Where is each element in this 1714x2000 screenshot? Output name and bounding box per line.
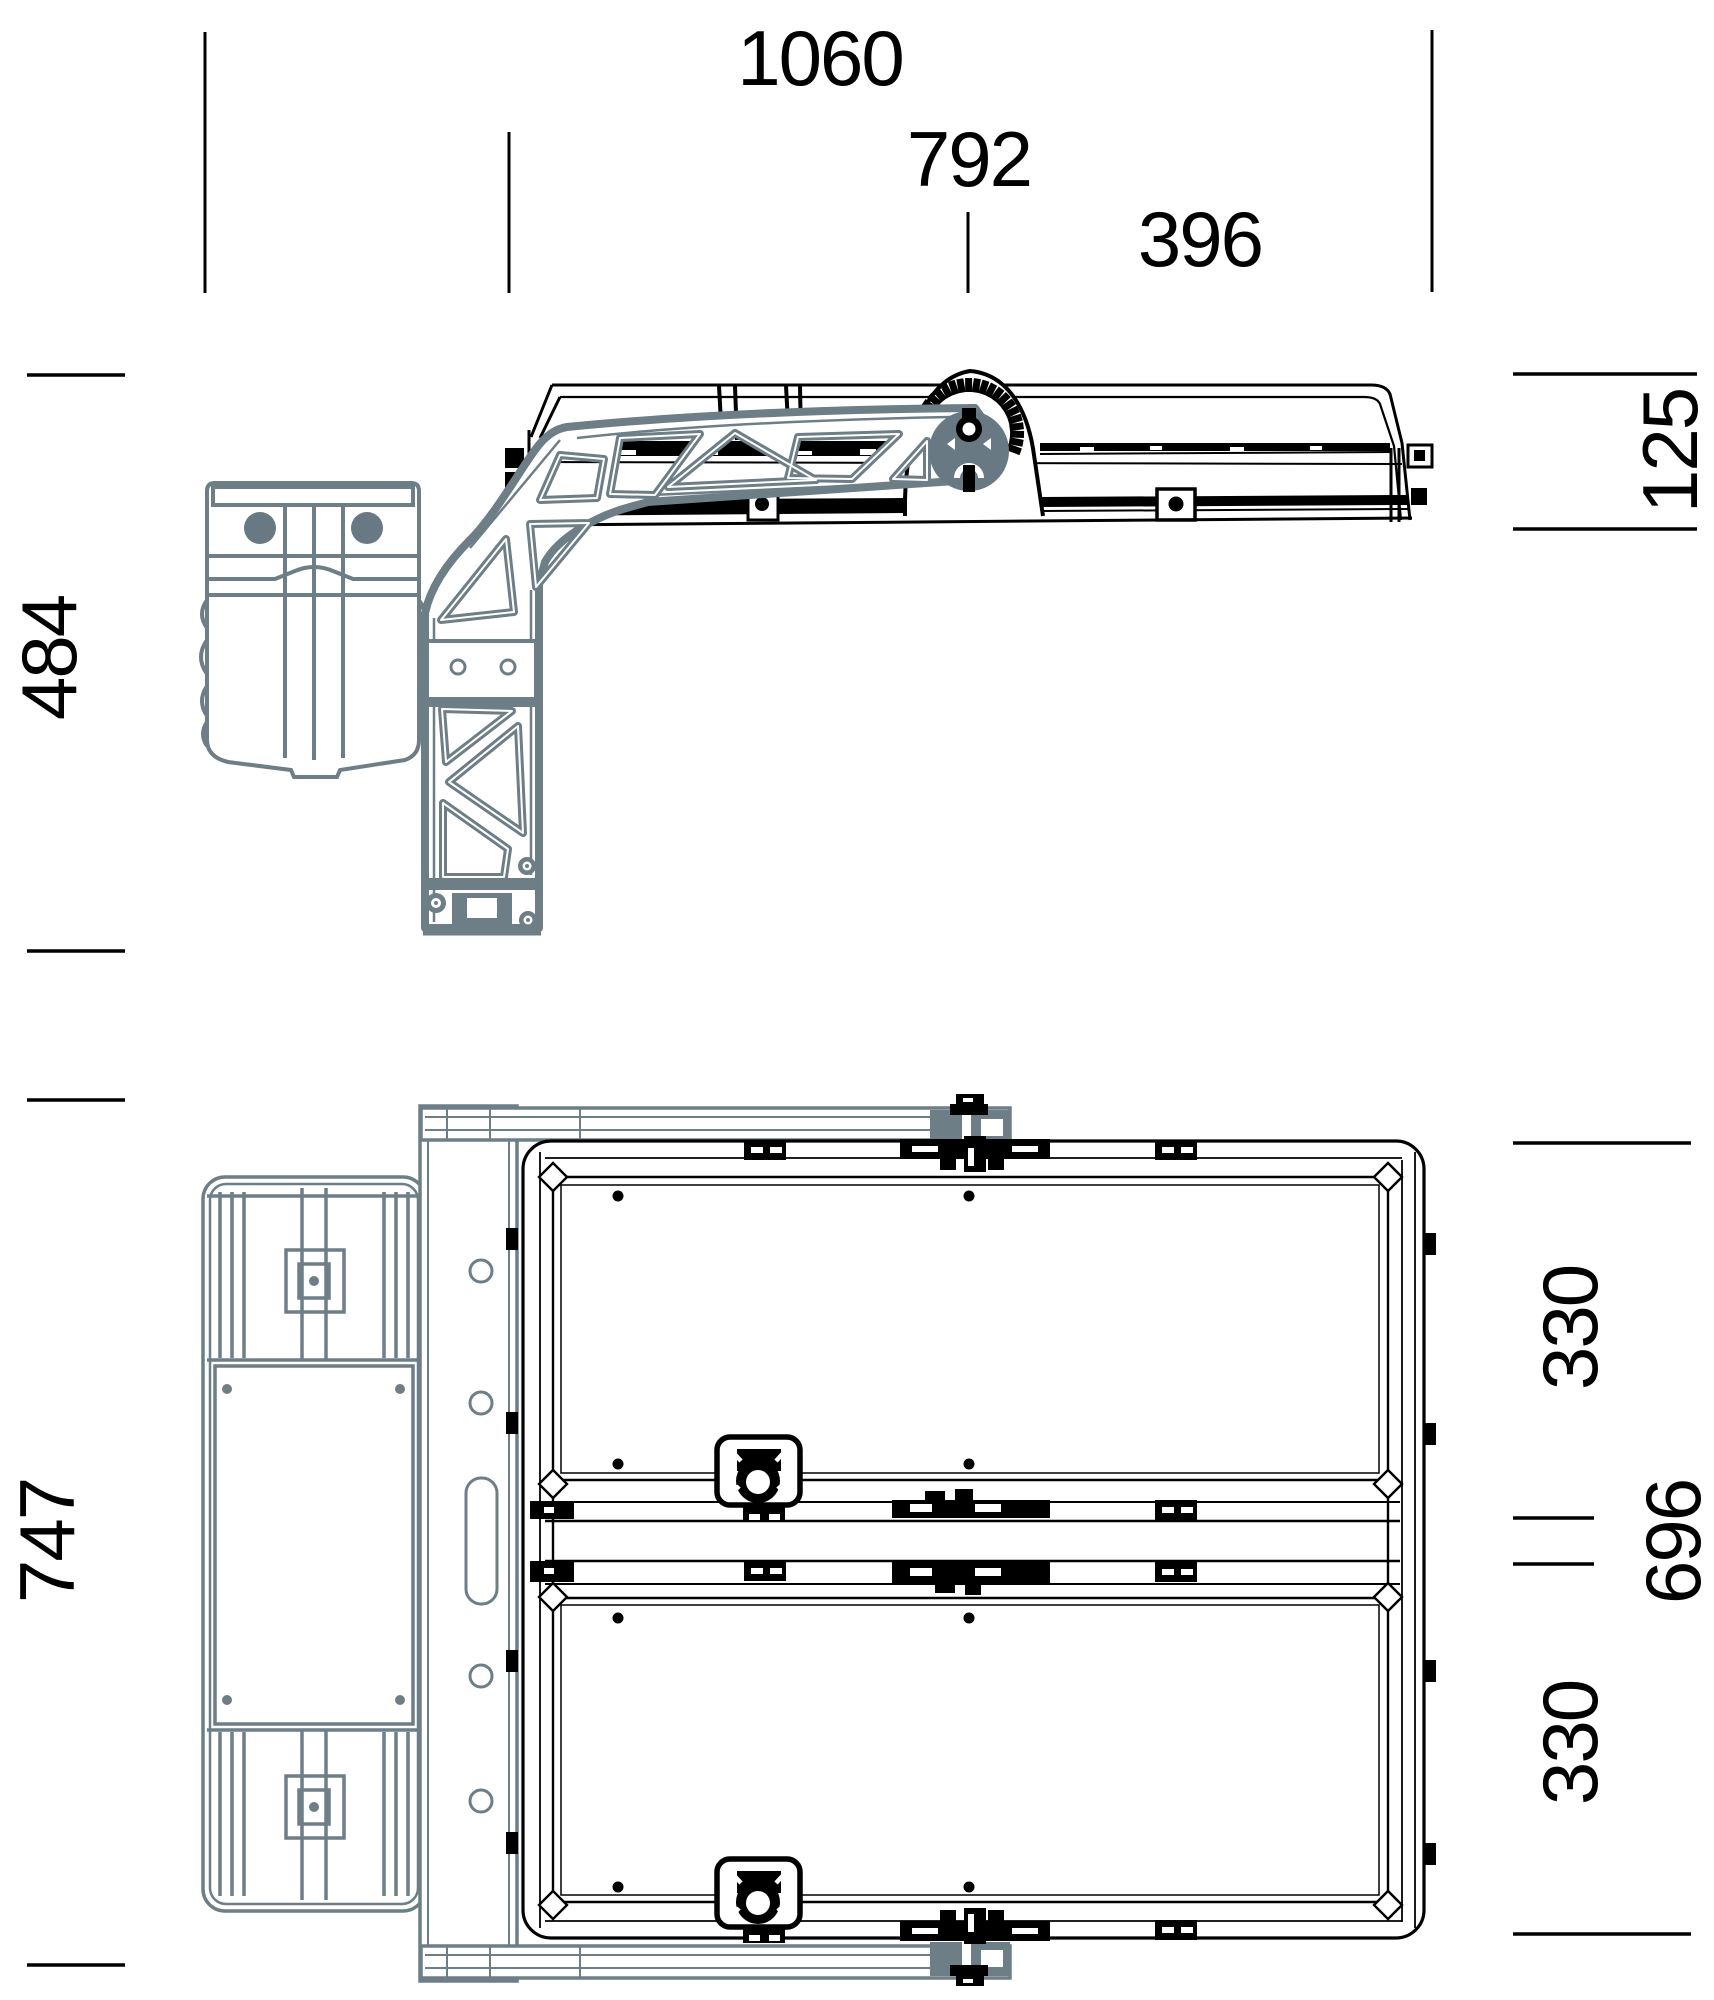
svg-text:792: 792: [907, 115, 1031, 203]
svg-text:696: 696: [1629, 1480, 1714, 1604]
svg-text:125: 125: [1626, 389, 1714, 513]
svg-text:484: 484: [5, 595, 93, 720]
svg-text:1060: 1060: [737, 14, 903, 102]
svg-text:396: 396: [1138, 195, 1262, 283]
svg-text:330: 330: [1526, 1266, 1614, 1390]
svg-text:330: 330: [1526, 1681, 1614, 1805]
svg-text:747: 747: [3, 1479, 91, 1603]
